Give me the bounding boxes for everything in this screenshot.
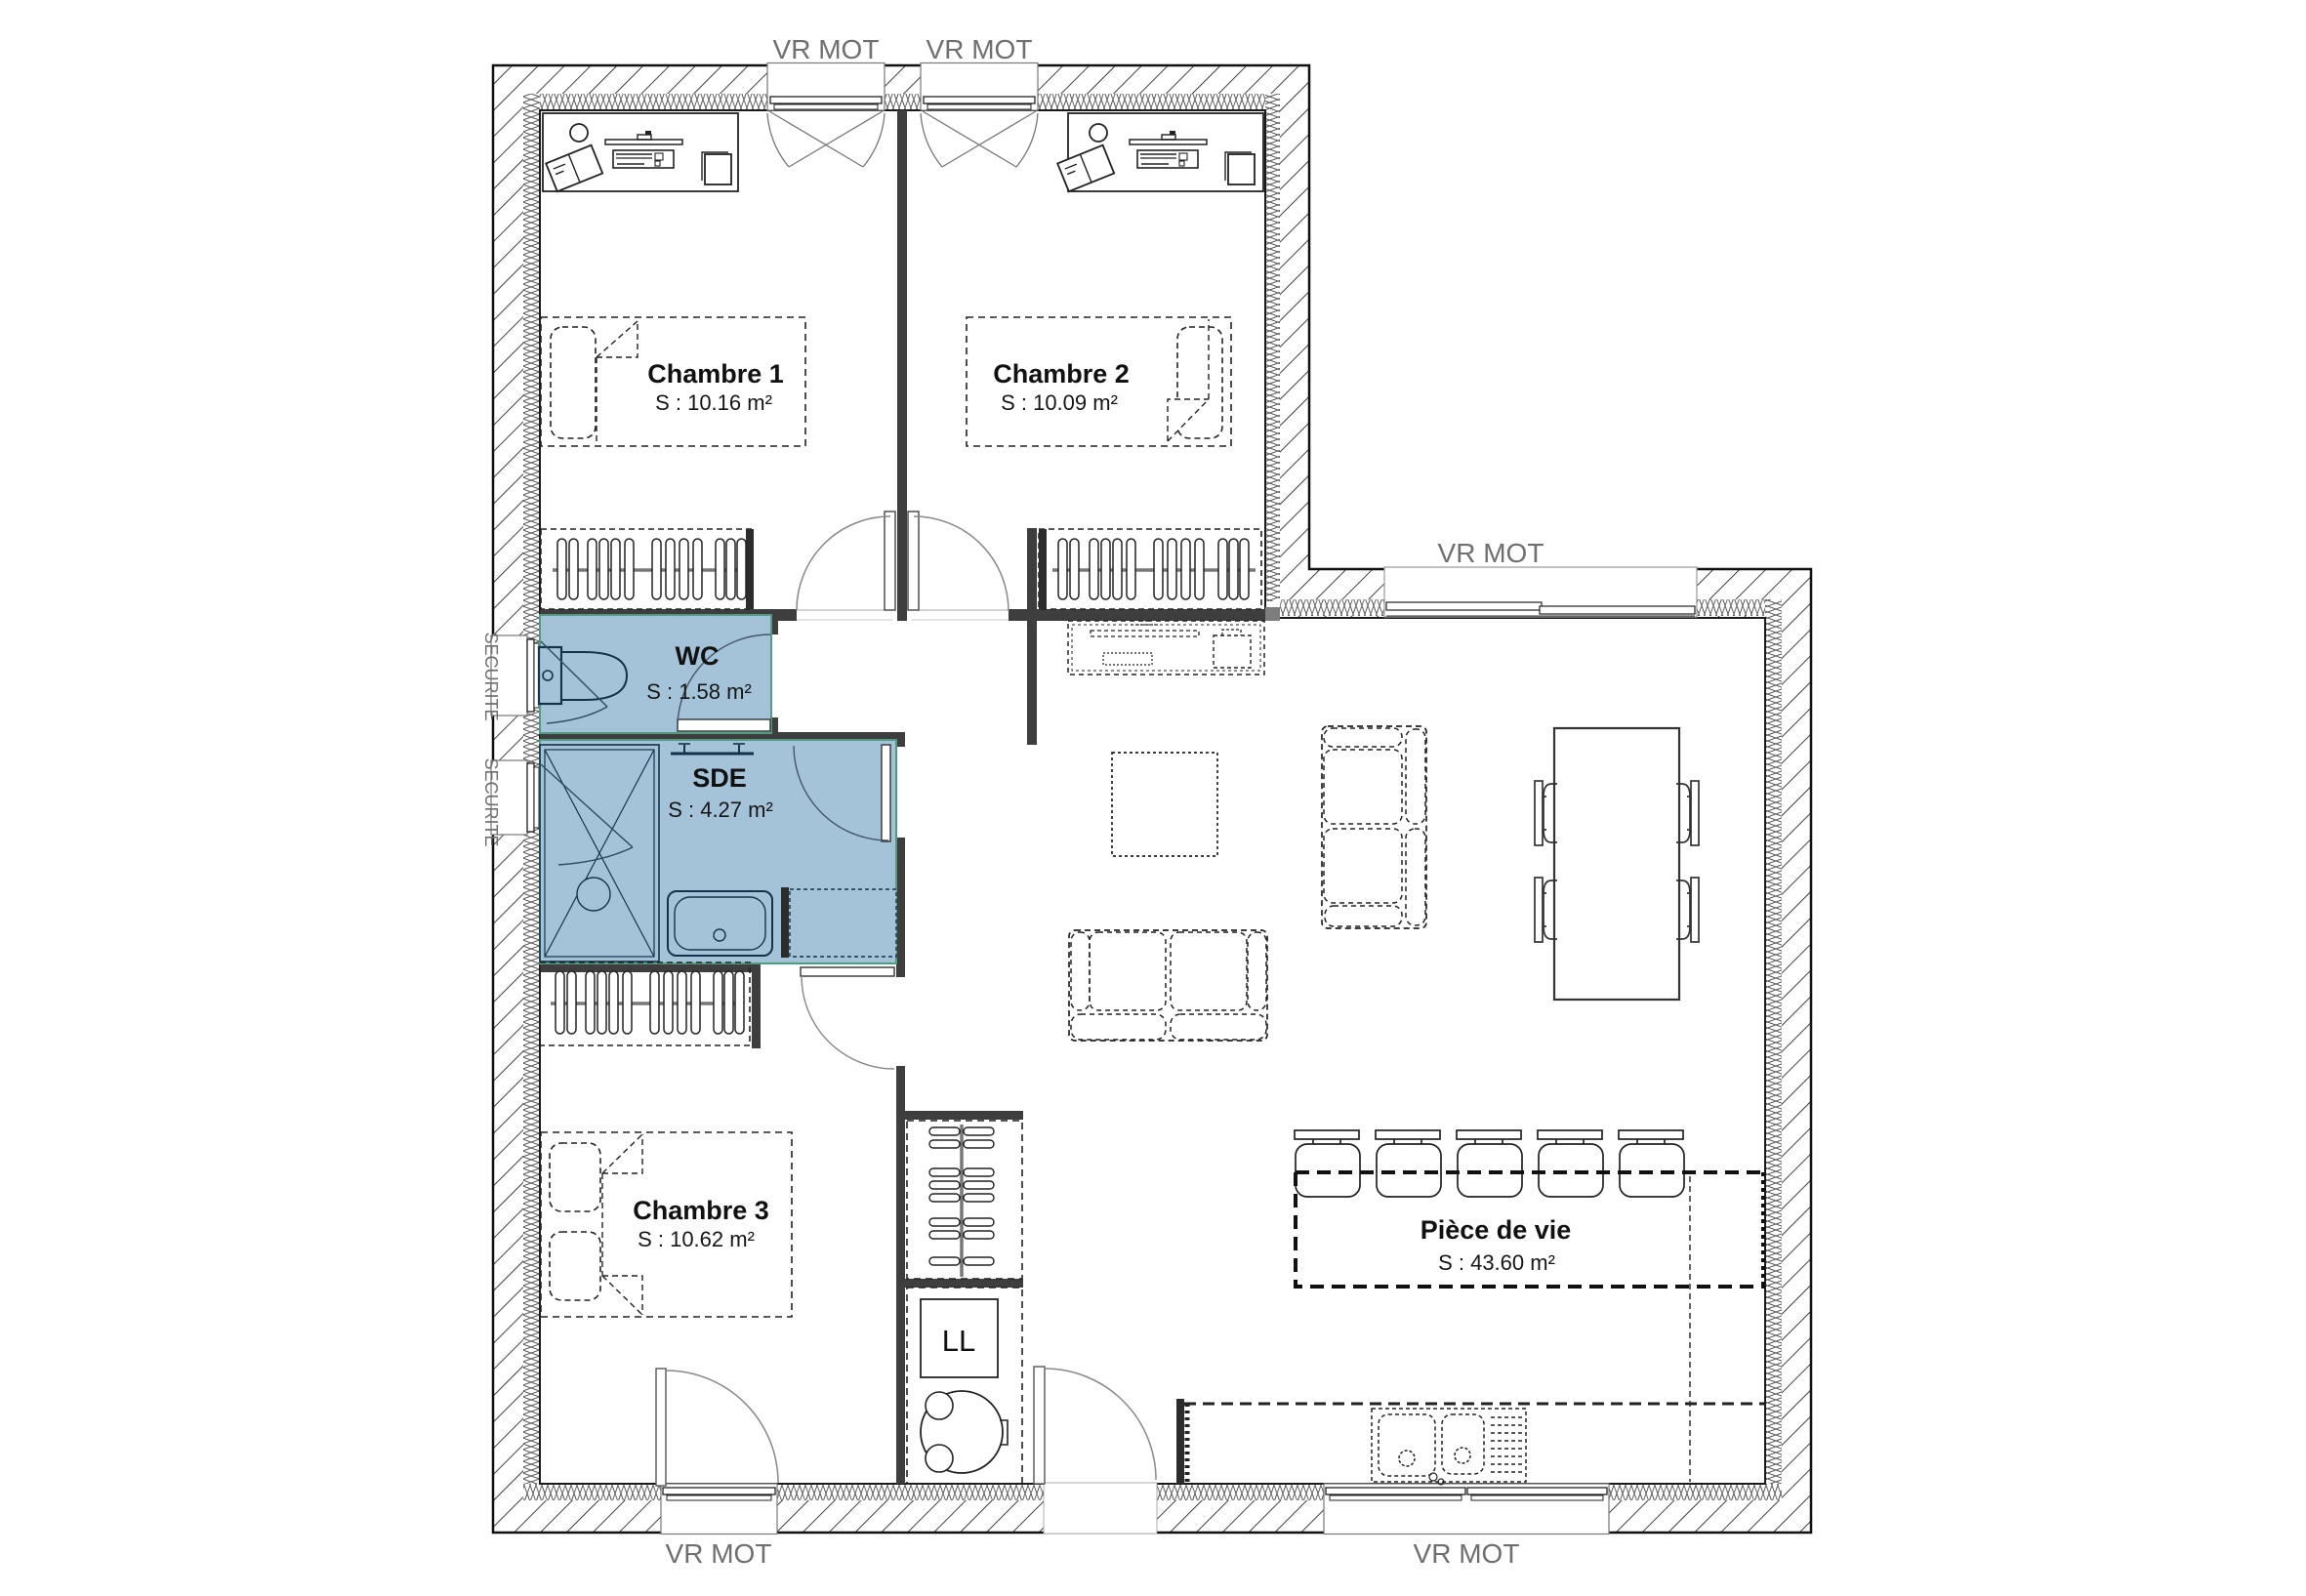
svg-text:SECURITE: SECURITE <box>481 632 501 720</box>
svg-text:S : 10.09 m²: S : 10.09 m² <box>1001 390 1118 415</box>
svg-text:VR MOT: VR MOT <box>773 34 880 64</box>
svg-text:LL: LL <box>942 1324 975 1358</box>
svg-text:S : 10.62 m²: S : 10.62 m² <box>638 1227 755 1251</box>
svg-text:S : 43.60 m²: S : 43.60 m² <box>1438 1250 1555 1275</box>
svg-text:Pièce de vie: Pièce de vie <box>1421 1215 1572 1245</box>
svg-text:S : 4.27 m²: S : 4.27 m² <box>668 798 773 822</box>
svg-text:S : 1.58 m²: S : 1.58 m² <box>646 679 752 704</box>
svg-text:WC: WC <box>676 641 720 671</box>
svg-text:VR MOT: VR MOT <box>666 1538 772 1569</box>
svg-text:Chambre 1: Chambre 1 <box>647 359 784 389</box>
svg-text:SECURITE: SECURITE <box>481 757 501 846</box>
svg-text:VR MOT: VR MOT <box>1438 538 1544 568</box>
svg-text:VR MOT: VR MOT <box>927 34 1033 64</box>
svg-text:Chambre 2: Chambre 2 <box>993 359 1130 389</box>
svg-text:S : 10.16 m²: S : 10.16 m² <box>655 390 772 415</box>
svg-text:Chambre 3: Chambre 3 <box>633 1196 769 1225</box>
svg-text:VR MOT: VR MOT <box>1414 1538 1520 1569</box>
svg-text:SDE: SDE <box>692 763 747 793</box>
